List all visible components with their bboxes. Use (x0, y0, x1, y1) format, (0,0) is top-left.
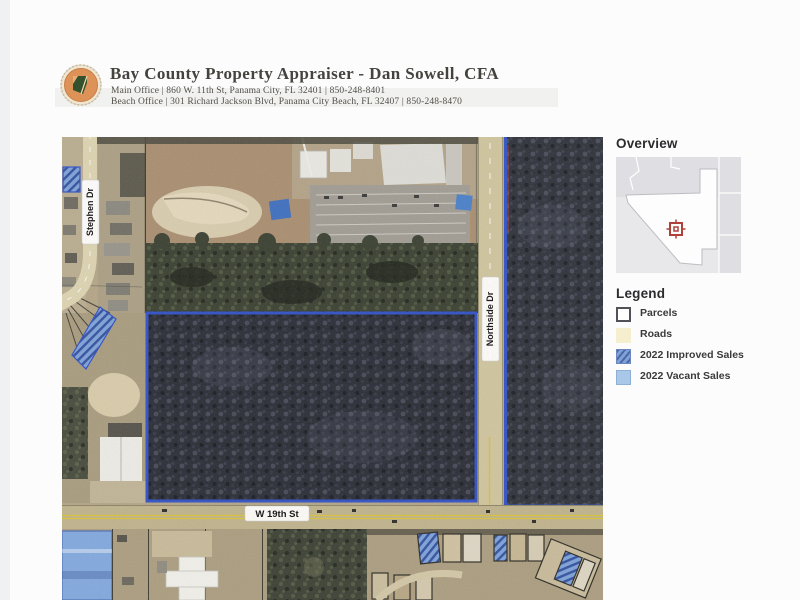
main-office-address: Main Office | 860 W. 11th St, Panama Cit… (111, 87, 385, 97)
parcels-swatch (616, 307, 631, 322)
aerial-map: Stephen Dr Northside Dr W 19th St (62, 137, 603, 600)
legend-item-parcels: Parcels (616, 307, 788, 322)
legend-item-improved-sales: 2022 Improved Sales (616, 349, 788, 364)
roads-swatch (616, 328, 631, 343)
legend-item-roads: Roads (616, 328, 788, 343)
bay-county-seal-icon (60, 64, 102, 106)
scan-edge-shading (0, 0, 10, 600)
beach-office-address: Beach Office | 301 Richard Jackson Blvd,… (111, 98, 462, 108)
vacant-sales-swatch (616, 370, 631, 385)
legend-item-vacant-sales: 2022 Vacant Sales (616, 370, 788, 385)
overview-title: Overview (616, 136, 788, 151)
scanned-appraiser-page: Bay County Property Appraiser - Dan Sowe… (0, 0, 800, 600)
map-sidebar: Overview Legend Parcels (616, 136, 788, 385)
improved-sales-swatch (616, 349, 631, 364)
overview-map (616, 157, 741, 273)
page-title: Bay County Property Appraiser - Dan Sowe… (110, 65, 499, 82)
aerial-map-canvas: Stephen Dr Northside Dr W 19th St (62, 137, 603, 600)
legend-title: Legend (616, 286, 788, 301)
scan-grain (62, 137, 603, 600)
